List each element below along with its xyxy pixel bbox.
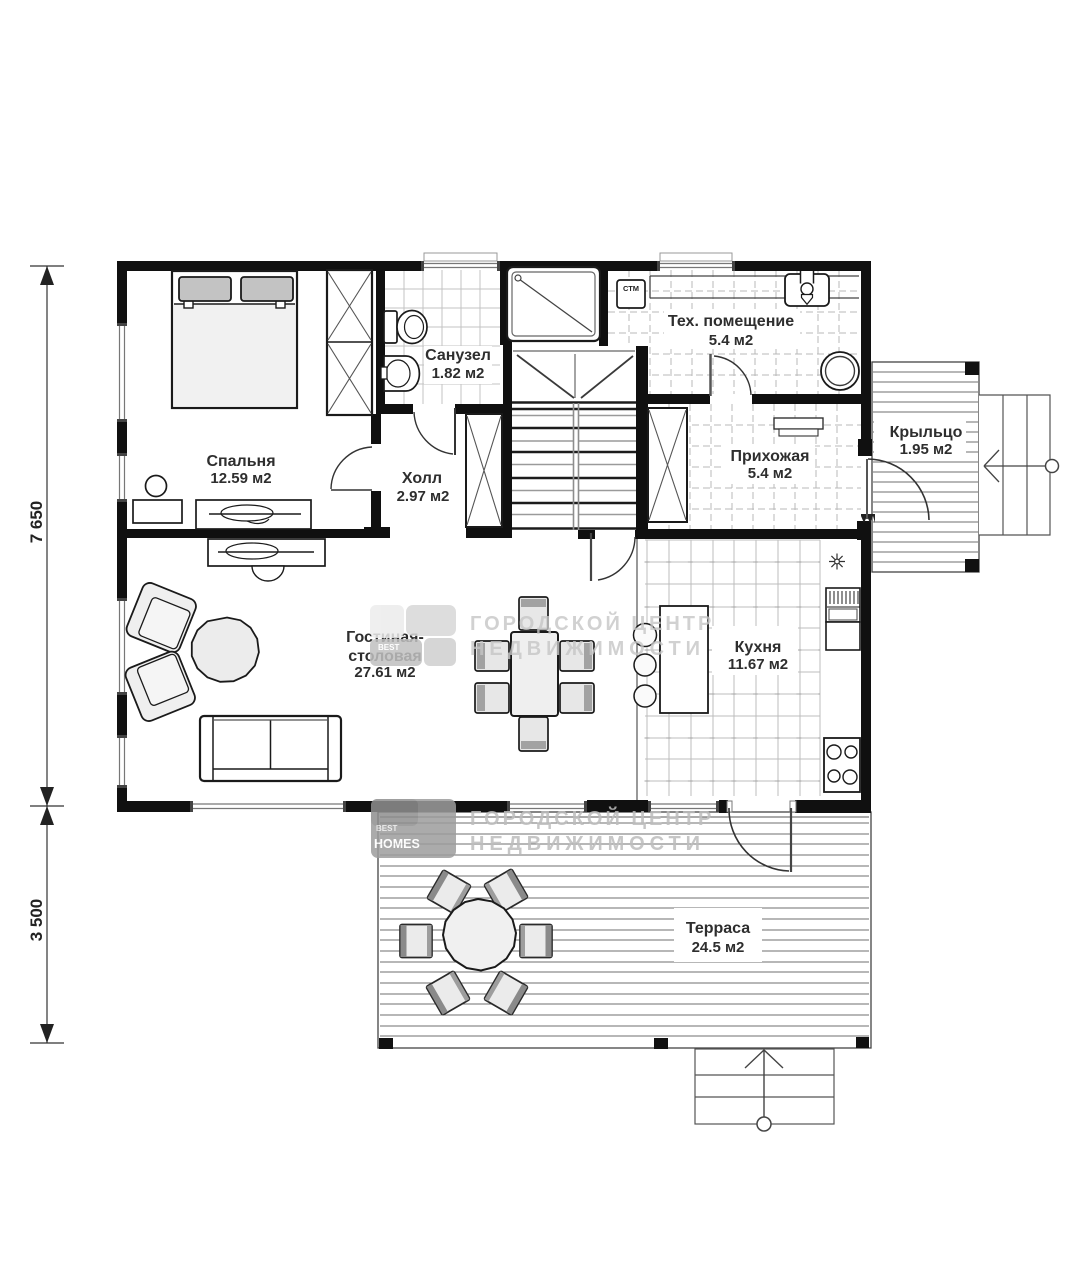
svg-text:Кухня: Кухня <box>735 639 782 656</box>
svg-text:ГОРОДСКОЙ ЦЕНТР: ГОРОДСКОЙ ЦЕНТР <box>470 611 714 635</box>
svg-text:5.4 м2: 5.4 м2 <box>748 465 792 482</box>
svg-text:Холл: Холл <box>402 470 442 487</box>
svg-text:Спальня: Спальня <box>206 453 275 470</box>
svg-text:НЕДВИЖИМОСТИ: НЕДВИЖИМОСТИ <box>470 833 705 855</box>
svg-text:НЕДВИЖИМОСТИ: НЕДВИЖИМОСТИ <box>470 638 705 660</box>
svg-text:Терраса: Терраса <box>686 920 750 937</box>
svg-text:Тех. помещение: Тех. помещение <box>668 313 794 330</box>
svg-text:3 500: 3 500 <box>27 899 46 942</box>
svg-text:12.59 м2: 12.59 м2 <box>210 470 271 487</box>
svg-text:BEST: BEST <box>378 643 399 652</box>
svg-text:Прихожая: Прихожая <box>731 448 810 465</box>
svg-text:СТМ: СТМ <box>623 284 639 293</box>
svg-text:7 650: 7 650 <box>27 501 46 544</box>
svg-text:27.61 м2: 27.61 м2 <box>354 664 415 681</box>
svg-text:1.82 м2: 1.82 м2 <box>432 365 485 382</box>
svg-text:5.4 м2: 5.4 м2 <box>709 332 753 349</box>
svg-text:BEST: BEST <box>376 824 397 833</box>
svg-text:1.95 м2: 1.95 м2 <box>900 441 953 458</box>
svg-text:11.67 м2: 11.67 м2 <box>728 656 788 673</box>
svg-text:Санузел: Санузел <box>425 347 491 364</box>
svg-text:24.5 м2: 24.5 м2 <box>692 939 745 956</box>
svg-text:ГОРОДСКОЙ ЦЕНТР: ГОРОДСКОЙ ЦЕНТР <box>470 806 714 830</box>
svg-text:HOMES: HOMES <box>374 837 420 851</box>
svg-text:2.97 м2: 2.97 м2 <box>397 488 450 505</box>
svg-text:Крыльцо: Крыльцо <box>890 424 963 441</box>
